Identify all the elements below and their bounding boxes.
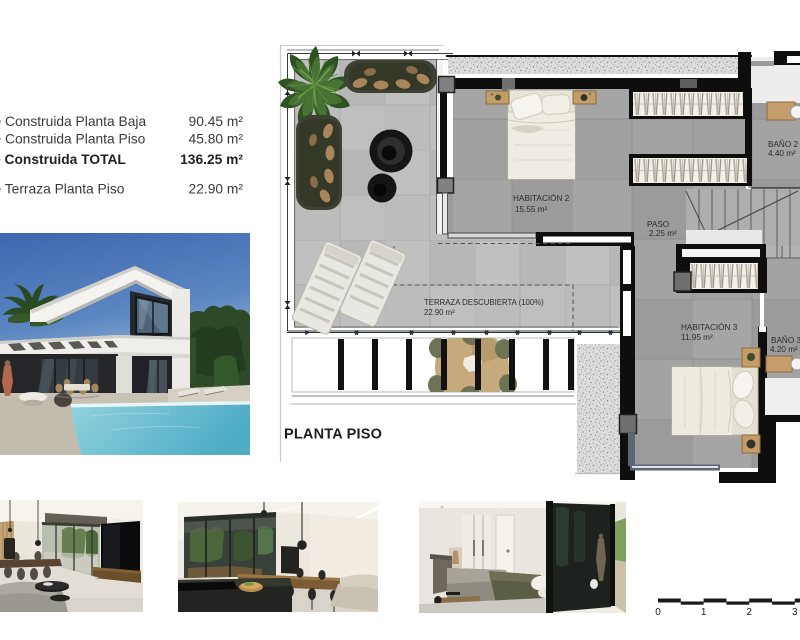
- svg-text:2: 2: [746, 607, 752, 618]
- svg-text:HABITACIÓN 3: HABITACIÓN 3: [681, 322, 738, 332]
- svg-text:2.25 m²: 2.25 m²: [649, 229, 677, 238]
- svg-text:HABITACIÓN 2: HABITACIÓN 2: [513, 193, 570, 203]
- svg-text:PASO: PASO: [647, 220, 669, 229]
- svg-text:22.90 m²: 22.90 m²: [424, 308, 455, 317]
- svg-text:TERRAZA DESCUBIERTA (100%): TERRAZA DESCUBIERTA (100%): [424, 298, 544, 307]
- svg-text:BAÑO 3: BAÑO 3: [771, 335, 800, 345]
- svg-text:11.95 m²: 11.95 m²: [681, 333, 713, 342]
- svg-text:e Terraza Planta Piso: e Terraza Planta Piso: [0, 182, 125, 197]
- svg-text:1: 1: [701, 607, 707, 618]
- svg-text:e Construida Planta Piso: e Construida Planta Piso: [0, 132, 146, 147]
- svg-text:90.45 m²: 90.45 m²: [189, 114, 244, 129]
- svg-text:22.90 m²: 22.90 m²: [189, 182, 244, 197]
- svg-text:4.20 m²: 4.20 m²: [770, 345, 798, 354]
- svg-text:4.40 m²: 4.40 m²: [768, 149, 796, 158]
- svg-text:PLANTA PISO: PLANTA PISO: [284, 427, 382, 443]
- svg-text:e Construida Planta Baja: e Construida Planta Baja: [0, 114, 146, 129]
- svg-text:15.55 m²: 15.55 m²: [515, 205, 548, 214]
- svg-text:BAÑO 2: BAÑO 2: [768, 139, 798, 149]
- svg-text:136.25 m²: 136.25 m²: [180, 152, 243, 167]
- svg-text:45.80 m²: 45.80 m²: [189, 132, 244, 147]
- svg-text:3: 3: [792, 607, 798, 618]
- svg-text:0: 0: [655, 607, 661, 618]
- svg-text:e Construida TOTAL: e Construida TOTAL: [0, 152, 126, 167]
